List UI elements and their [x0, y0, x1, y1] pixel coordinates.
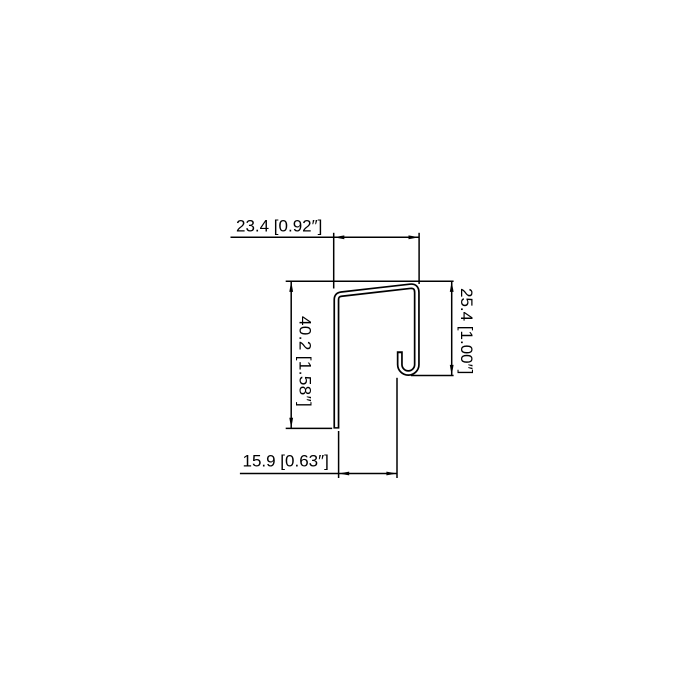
svg-text:25.4 [1.00″]: 25.4 [1.00″] — [457, 288, 476, 374]
svg-text:23.4 [0.92″]: 23.4 [0.92″] — [236, 216, 322, 235]
svg-text:15.9 [0.63″]: 15.9 [0.63″] — [243, 451, 329, 470]
svg-text:40.2 [1.58″]: 40.2 [1.58″] — [296, 316, 315, 407]
